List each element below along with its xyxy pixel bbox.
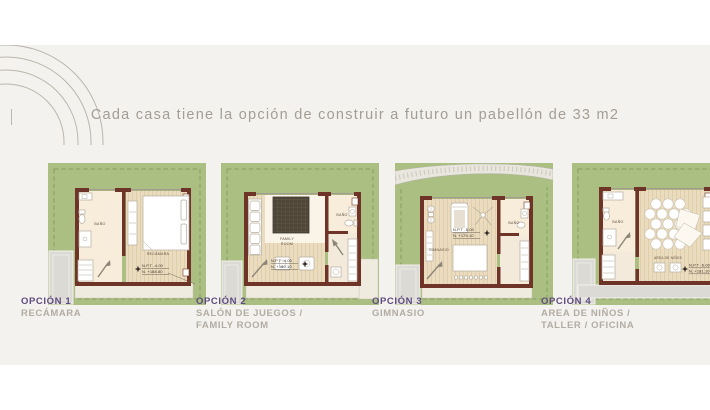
option-2-title: OPCIÓN 2	[196, 296, 351, 308]
option-4-title: OPCIÓN 4	[541, 296, 696, 308]
bath-room-label: BAÑO	[508, 220, 519, 225]
floor-plan-drawing-3: GIMNASIO BAÑO N.P.T -5.00 N. +179.10	[395, 163, 553, 305]
option-3-title: OPCIÓN 3	[372, 296, 527, 308]
main-room-label: GIMNASIO	[429, 248, 449, 252]
npt-level-text: N.P.T -4.00	[142, 263, 164, 268]
option-2-subtitle-line2: FAMILY ROOM	[196, 320, 351, 332]
main-room-label: AREA DE NIÑOS	[654, 255, 682, 260]
option-2-subtitle-line1: SALÓN DE JUEGOS /	[196, 308, 351, 320]
closet-symbol	[348, 239, 357, 281]
closet-symbol	[78, 260, 93, 281]
floor-plan-drawing-1: BAÑO RECÁMARA N.P.T -4.00 N. +188.80	[48, 163, 206, 305]
bath-room-label: BAÑO	[94, 221, 105, 226]
closet-symbol	[520, 241, 529, 281]
rug-symbol	[273, 197, 309, 233]
floor-plan-drawing-4: BAÑO AREA DE NIÑOS N.P.T -6.00 N. +181.1…	[572, 163, 710, 305]
bath-room-label: BAÑO	[336, 212, 347, 217]
option-4-subtitle-line2: TALLER / OFICINA	[541, 320, 696, 332]
option-1-caption: OPCIÓN 1 RECÁMARA	[21, 296, 176, 320]
floor-plan-option-3: GIMNASIO BAÑO N.P.T -5.00 N. +179.10	[395, 163, 553, 305]
option-1-title: OPCIÓN 1	[21, 296, 176, 308]
option-1-subtitle-line1: RECÁMARA	[21, 308, 176, 320]
elevation-text: N. +181.10	[689, 269, 710, 274]
option-4-caption: OPCIÓN 4 AREA DE NIÑOS / TALLER / OFICIN…	[541, 296, 696, 332]
npt-level-text: N.P.T -4.00	[271, 258, 293, 263]
corner-arcs-decoration	[0, 45, 108, 145]
elevation-text: N. +179.10	[453, 233, 474, 238]
option-3-subtitle-line1: GIMNASIO	[372, 308, 527, 320]
npt-level-text: N.P.T -5.00	[453, 227, 475, 232]
main-room-label-line1: FAMILY	[280, 237, 294, 241]
floor-plan-option-2: FAMILY ROOM BAÑO N.P.T -4.00 N. +180.10	[221, 163, 379, 305]
bath-room-label: BAÑO	[612, 219, 623, 224]
closet-symbol	[602, 255, 615, 279]
floor-plan-option-1: BAÑO RECÁMARA N.P.T -4.00 N. +188.80	[48, 163, 206, 305]
option-4-subtitle-line1: AREA DE NIÑOS /	[541, 308, 696, 320]
option-3-caption: OPCIÓN 3 GIMNASIO	[372, 296, 527, 320]
elevation-text: N. +188.80	[142, 269, 163, 274]
floor-plan-drawing-2: FAMILY ROOM BAÑO N.P.T -4.00 N. +180.10	[221, 163, 379, 305]
elevation-text: N. +180.10	[271, 264, 292, 269]
npt-level-text: N.P.T -6.00	[689, 263, 710, 268]
main-room-label: RECÁMARA	[147, 252, 170, 256]
sofa-symbol	[249, 199, 262, 255]
option-2-caption: OPCIÓN 2 SALÓN DE JUEGOS / FAMILY ROOM	[196, 296, 351, 332]
bed-symbol	[128, 196, 189, 250]
page-title: Cada casa tiene la opción de construir a…	[0, 107, 710, 123]
floor-plan-option-4: BAÑO AREA DE NIÑOS N.P.T -6.00 N. +181.1…	[572, 163, 710, 305]
main-room-label-line2: ROOM	[281, 242, 293, 246]
